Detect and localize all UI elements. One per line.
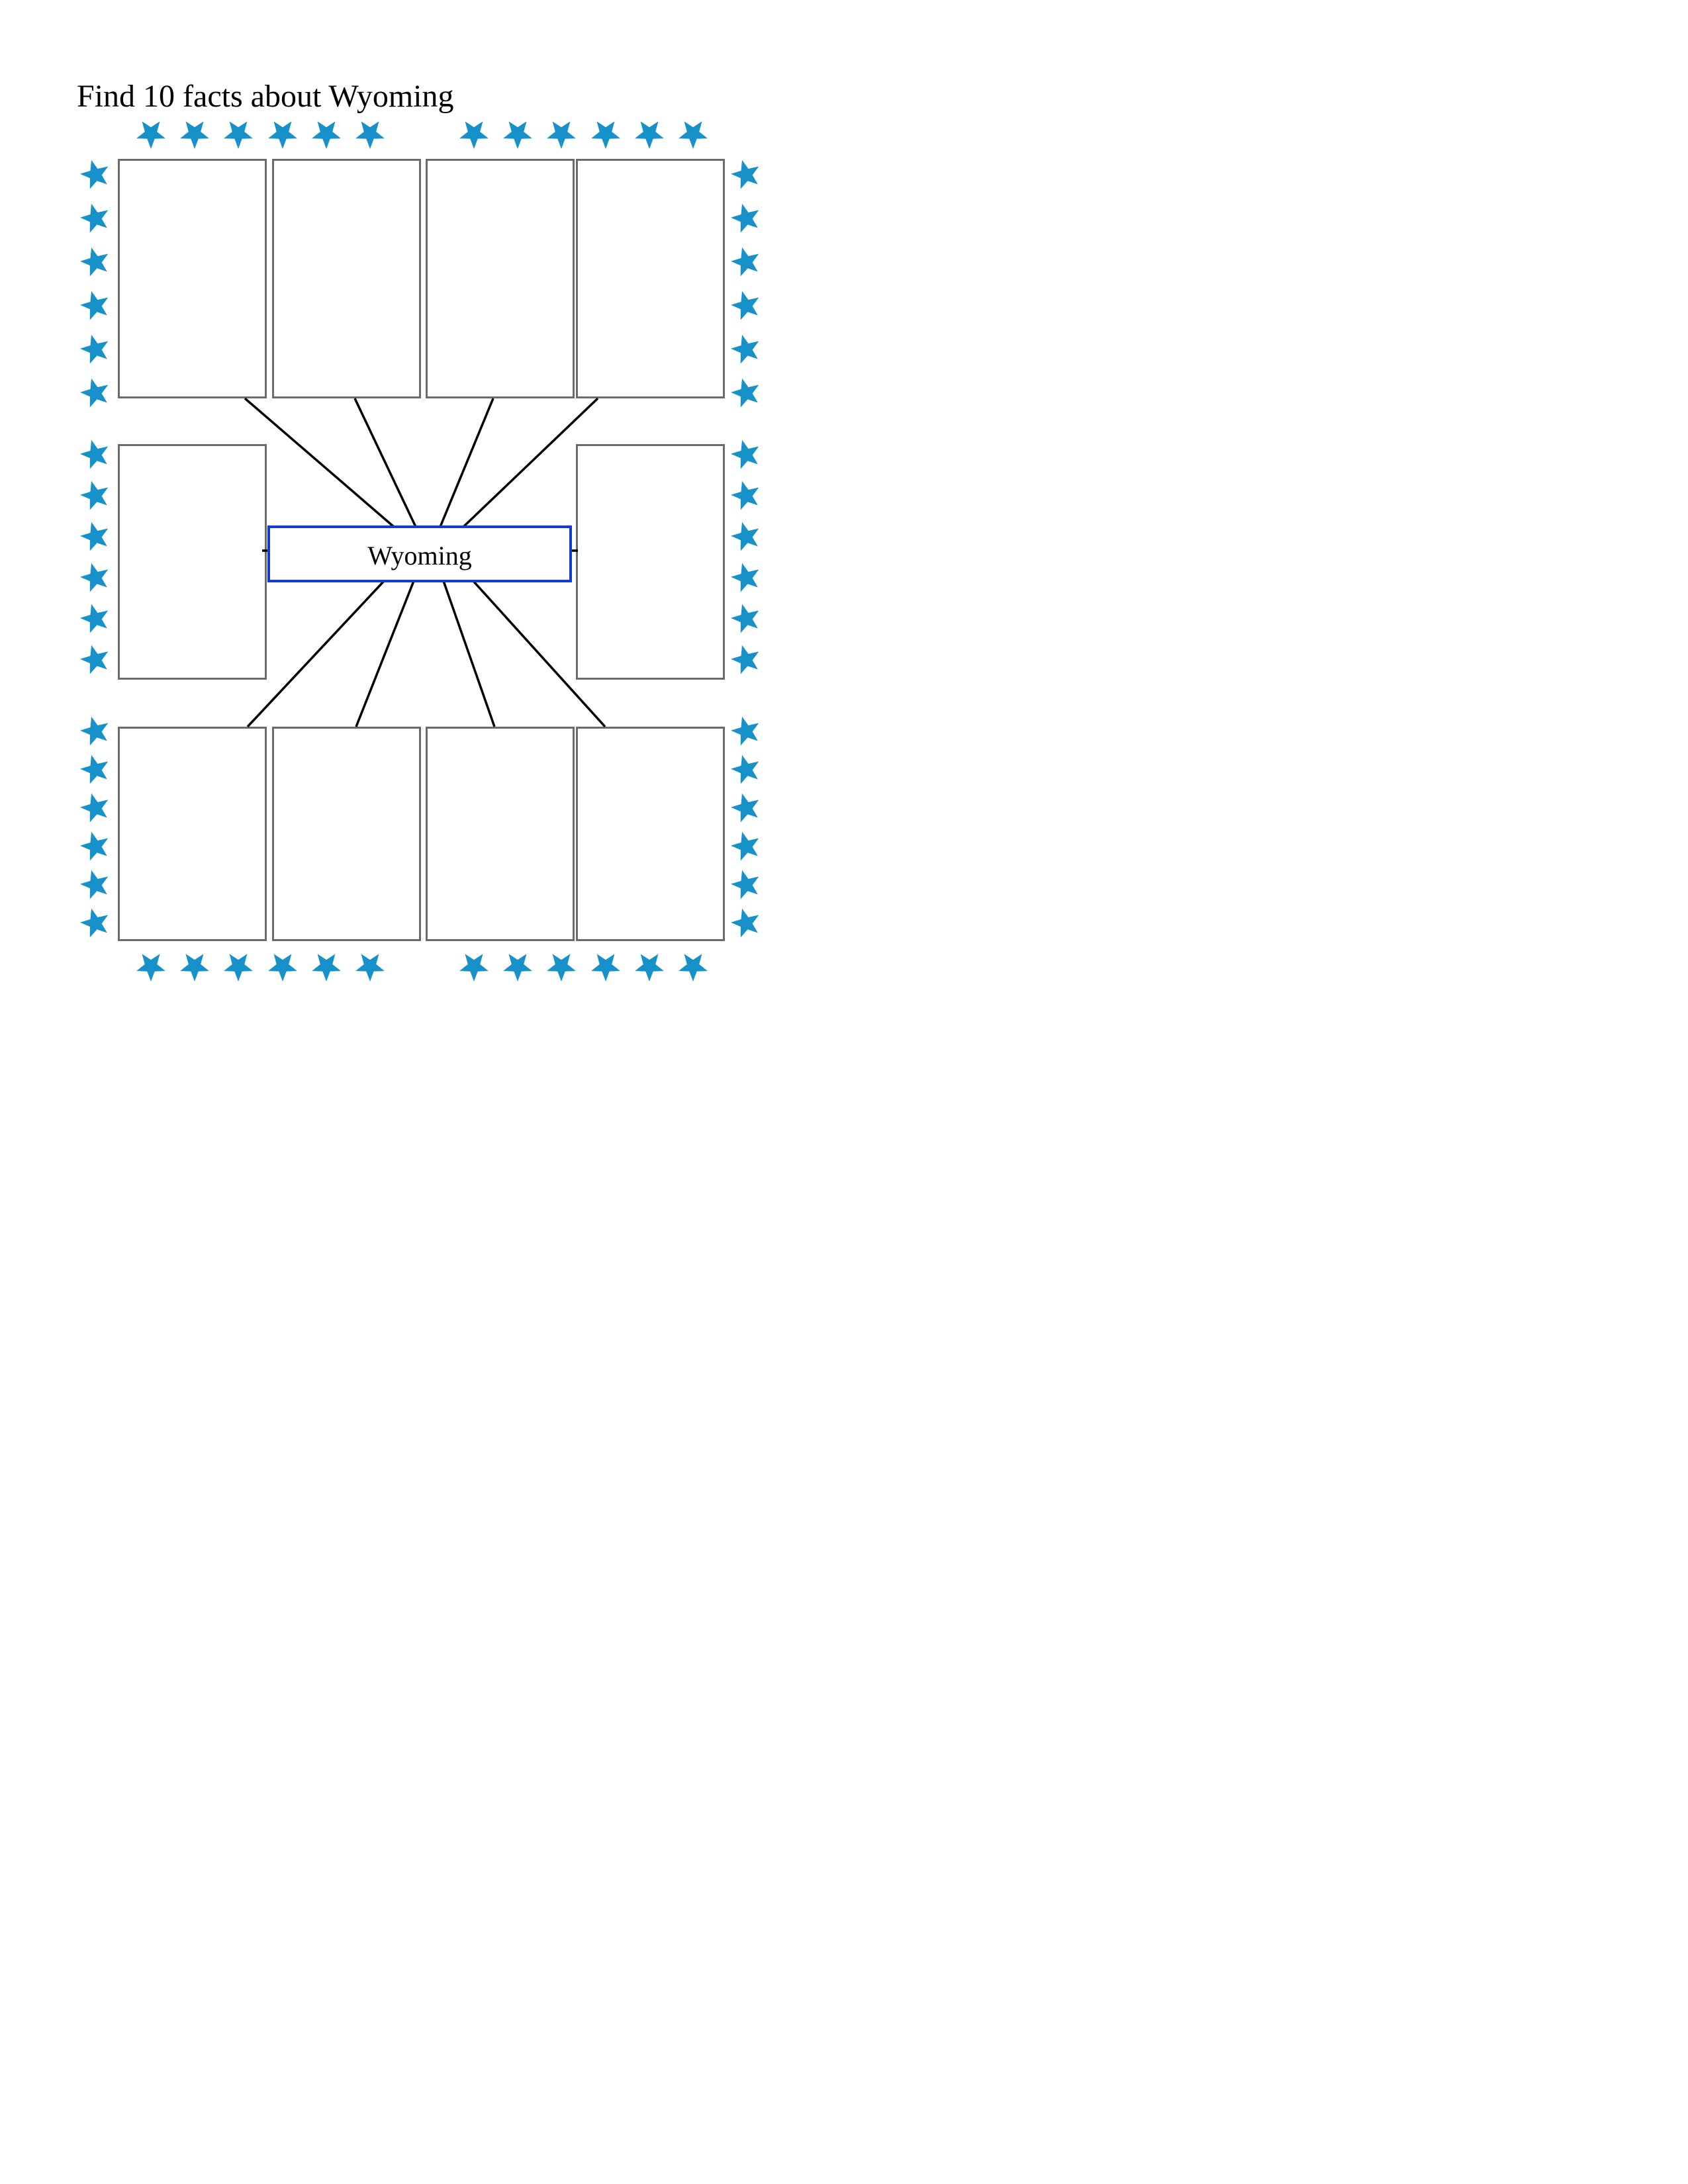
star-icon — [223, 118, 254, 149]
star-icon — [77, 559, 114, 596]
star-icon — [179, 118, 210, 149]
star-icon — [727, 866, 765, 903]
star-icon — [77, 200, 114, 237]
fact-box-middle-right[interactable] — [576, 444, 725, 680]
fact-box-top-2[interactable] — [272, 159, 421, 398]
fact-box-middle-left[interactable] — [118, 444, 267, 680]
star-icon — [727, 713, 765, 750]
fact-box-bottom-2[interactable] — [272, 727, 421, 941]
star-icon — [179, 951, 210, 981]
star-icon — [502, 951, 533, 981]
star-icon — [136, 118, 166, 149]
star-icon — [77, 375, 114, 412]
connector-line — [248, 581, 384, 727]
star-icon — [77, 600, 114, 637]
star-icon — [267, 118, 298, 149]
star-icon — [590, 951, 621, 981]
star-icon — [727, 477, 765, 514]
center-topic-label: Wyoming — [367, 543, 472, 569]
star-icon — [590, 118, 621, 149]
star-icon — [77, 436, 114, 473]
star-icon — [459, 951, 489, 981]
star-icon — [77, 518, 114, 555]
star-icon — [77, 905, 114, 942]
fact-box-bottom-4[interactable] — [576, 727, 725, 941]
star-icon — [77, 713, 114, 750]
star-icon — [727, 156, 765, 193]
star-icon — [727, 600, 765, 637]
star-icon — [223, 951, 254, 981]
star-icon — [77, 641, 114, 678]
connector-line — [440, 398, 493, 527]
star-icon — [678, 118, 708, 149]
star-icon — [727, 751, 765, 788]
star-icon — [727, 287, 765, 324]
star-icon — [727, 641, 765, 678]
star-icon — [459, 118, 489, 149]
star-icon — [77, 790, 114, 827]
star-icon — [634, 951, 665, 981]
fact-box-top-1[interactable] — [118, 159, 267, 398]
star-icon — [77, 331, 114, 368]
star-icon — [77, 866, 114, 903]
star-icon — [311, 118, 342, 149]
star-icon — [77, 477, 114, 514]
star-icon — [77, 828, 114, 865]
star-icon — [546, 118, 577, 149]
connector-line — [444, 581, 494, 727]
star-icon — [77, 244, 114, 281]
star-icon — [546, 951, 577, 981]
star-icon — [727, 790, 765, 827]
star-icon — [634, 118, 665, 149]
connector-line — [355, 398, 416, 527]
center-topic-box: Wyoming — [267, 525, 572, 582]
star-icon — [727, 244, 765, 281]
star-icon — [77, 287, 114, 324]
star-icon — [727, 518, 765, 555]
star-icon — [502, 118, 533, 149]
star-icon — [136, 951, 166, 981]
worksheet-page: Find 10 facts about Wyoming Wyoming — [0, 0, 844, 1092]
connector-line — [245, 398, 394, 527]
fact-box-top-3[interactable] — [426, 159, 575, 398]
star-icon — [727, 375, 765, 412]
star-icon — [77, 156, 114, 193]
star-icon — [678, 951, 708, 981]
star-icon — [727, 828, 765, 865]
star-icon — [355, 951, 385, 981]
star-icon — [727, 436, 765, 473]
fact-box-bottom-1[interactable] — [118, 727, 267, 941]
star-icon — [267, 951, 298, 981]
star-icon — [727, 559, 765, 596]
connector-line — [356, 581, 414, 727]
star-icon — [727, 331, 765, 368]
star-icon — [77, 751, 114, 788]
page-title: Find 10 facts about Wyoming — [77, 78, 454, 114]
star-icon — [311, 951, 342, 981]
star-icon — [355, 118, 385, 149]
star-icon — [727, 905, 765, 942]
star-icon — [727, 200, 765, 237]
fact-box-bottom-3[interactable] — [426, 727, 575, 941]
fact-box-top-4[interactable] — [576, 159, 725, 398]
